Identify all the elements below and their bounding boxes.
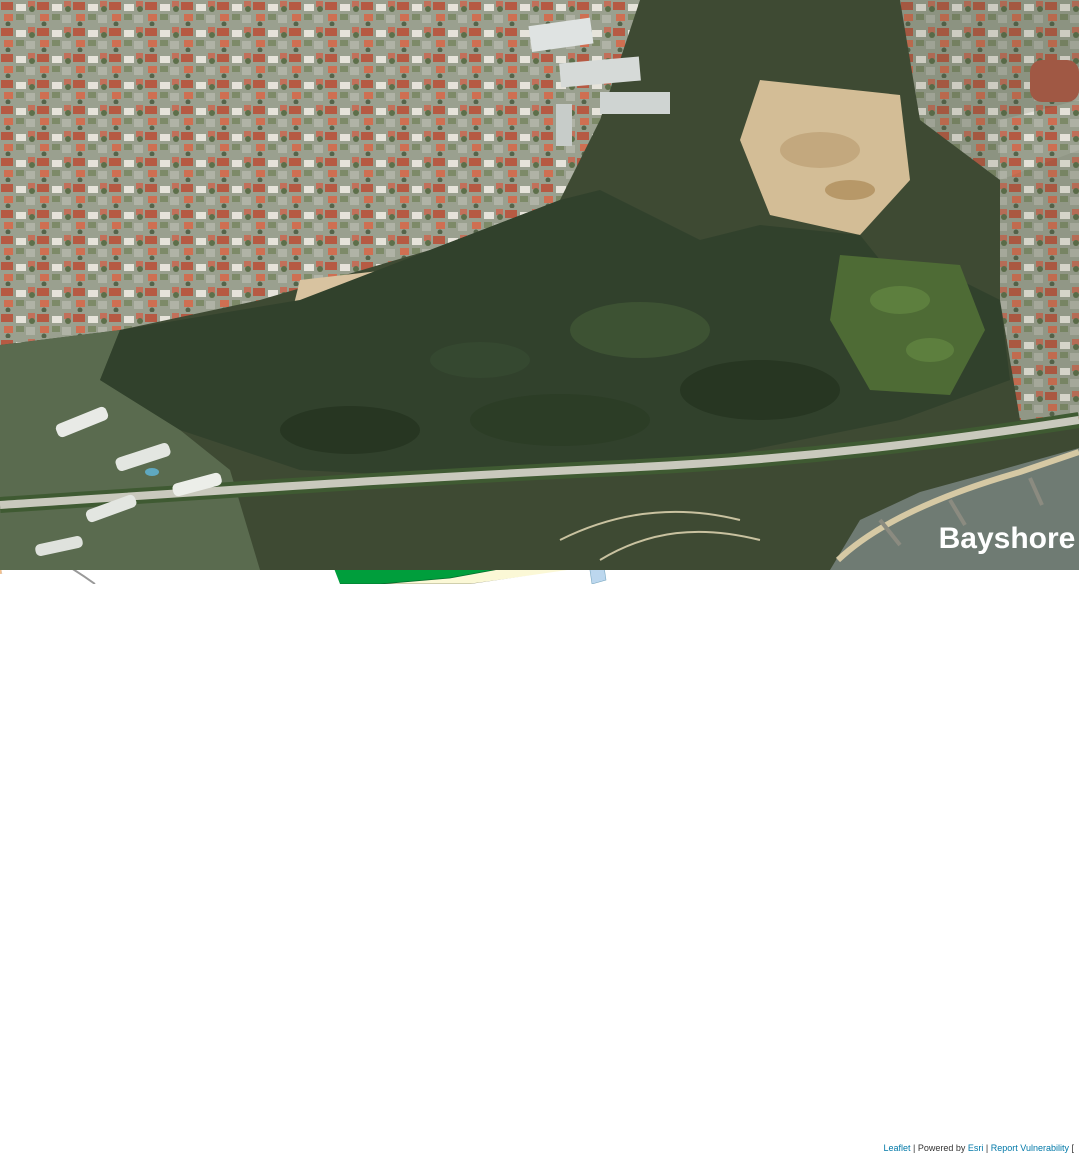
attribution-report-vulnerability-link[interactable]: Report Vulnerability [991, 1143, 1069, 1153]
attribution-sep1: | [911, 1143, 918, 1153]
satellite-running-track [1030, 60, 1079, 102]
map-attribution: Leaflet | Powered by Esri | Report Vulne… [882, 1143, 1076, 1153]
satellite-basemap[interactable]: Bayshore [0, 0, 1079, 570]
attribution-leaflet-link[interactable]: Leaflet [884, 1143, 911, 1153]
attribution-esri-link[interactable]: Esri [968, 1143, 984, 1153]
satellite-area-label: Bayshore [939, 522, 1076, 555]
attribution-powered: Powered by [918, 1143, 968, 1153]
screenshot-root: Bayshore [0, 0, 1079, 1154]
attribution-sep2: | [983, 1143, 990, 1153]
attribution-tail: [ [1069, 1143, 1074, 1153]
